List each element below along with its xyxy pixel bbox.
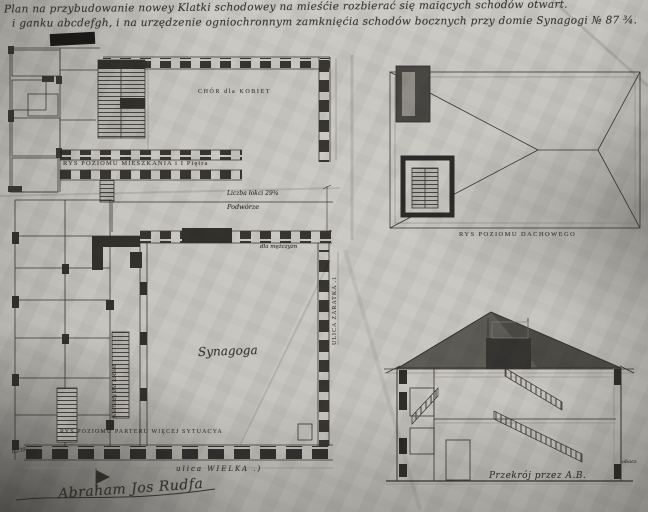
label-first-floor-plan: RYS POZIOMU MIESZKANIA i I Piętra bbox=[63, 160, 209, 167]
ink-blot bbox=[50, 32, 96, 46]
archival-plan-scan: Plan na przybudowanie nowey Klatki schod… bbox=[0, 0, 648, 512]
label-ground-plan: RYS POZIOMU PARTERU WIĘCEJ SYTUACYA bbox=[60, 429, 223, 435]
label-cubits: Liczba łokci 29¾ bbox=[227, 190, 279, 197]
first-floor-plan-drawing bbox=[60, 57, 336, 202]
label-stairs-note: wschody dla kobiet bbox=[112, 364, 118, 418]
label-courtyard: Podwórze bbox=[227, 203, 259, 211]
label-street-side: ULICA ZARATKA .1 bbox=[332, 276, 338, 345]
label-choir: CHÓR dla KOBIET bbox=[198, 89, 271, 95]
label-synagogue: Synagoga bbox=[198, 343, 258, 359]
roof-plan-drawing bbox=[390, 66, 640, 228]
label-street-bottom: ulica WIELKA .) bbox=[176, 465, 262, 473]
label-roof-plan: RYS POZIOMU DACHOWEGO bbox=[459, 231, 576, 238]
label-for-men: dla mężczyzn bbox=[260, 244, 297, 250]
architectural-drawing-linework bbox=[0, 0, 648, 512]
label-section: Przekrój przez A.B. bbox=[489, 471, 586, 481]
cross-section-drawing bbox=[384, 312, 634, 484]
label-see-note: obacz bbox=[622, 459, 637, 465]
